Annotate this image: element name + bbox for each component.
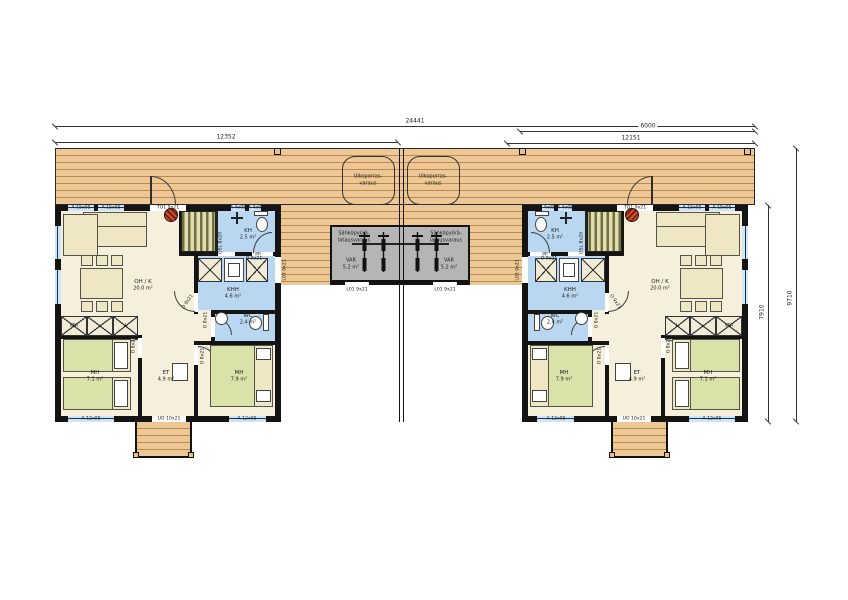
deck-post [744,148,751,155]
bed-blanket [63,339,113,372]
side-door-gap [522,257,528,283]
door-code: O 8x21 [595,312,600,329]
window [55,269,61,305]
entry-porch [611,422,668,458]
window-code: A 12x05 [81,417,100,422]
room-name: KHH [564,287,576,293]
apartment-left: A 15x05 A 15x05 TO1 9x21 A 4x05 A 4x05 K… [55,205,281,422]
window-code: A 12x05 [237,417,256,422]
bicycle-icon [411,230,424,274]
room-area: 4.9 m² [158,377,174,383]
bed-blanket [690,339,740,372]
window-code: A 4x05 [248,206,264,211]
dim-right-section: 12151 [619,135,642,142]
porch-post [188,452,194,458]
appliance-code: PK [204,253,210,258]
room-area: 2.5 m² [240,235,256,241]
storage-label: VAR [444,258,454,264]
window-code: A 4x05 [230,206,246,211]
appliance [563,263,575,277]
shower-icon [560,217,572,219]
room-area: 2.4 m² [240,320,256,326]
closet-code: L [676,324,679,329]
bicycle-icon [430,230,443,274]
room-name: ET [163,370,170,376]
room-name: KH [551,228,559,234]
room-area: 2.4 m² [547,320,563,326]
appliance-code: PP [542,253,548,258]
window [742,269,748,305]
window-code: A 15x05 [101,206,120,211]
dim-line-right-deck [520,131,755,132]
porch-post [664,452,670,458]
window-code: A 15x05 [712,206,731,211]
appliance [246,258,268,282]
room-area: 7.1 m² [700,377,716,383]
bed-pillow [532,390,547,402]
floor-plan-canvas: 24441 12352 6000 12151 7910 9710 Ulkopor… [0,0,848,600]
bed-pillow [256,348,271,360]
window-code: A 15x05 [682,206,701,211]
dining-chair [710,255,722,266]
room-area: 2.5 m² [547,235,563,241]
wall-segment [275,205,281,422]
sofa-chaise [63,214,98,256]
room-name: OH / K [134,279,151,285]
toilet-icon [535,217,547,232]
apartment-right: A 15x05 A 15x05 TO1 9x21 A 4x05 A 4x05 K… [522,205,748,422]
terrace-door-code: TO1 9x21 [624,206,646,211]
dining-chair [710,301,722,312]
room-area: 20.0 m² [650,286,670,292]
window-code: A 12x05 [702,417,721,422]
room-name: WC [550,313,559,319]
storage-door-gap [345,282,369,285]
dim-line-right [507,143,755,144]
dining-chair [96,301,108,312]
dining-chair [680,301,692,312]
dining-chair [81,301,93,312]
door-code: O 8x21 [201,348,206,365]
side-door-code: L03 9x21 [516,259,521,280]
shower-icon [231,217,243,219]
window-code: A 4x05 [557,206,573,211]
closet-code: L [125,324,128,329]
toilet-icon [254,211,268,216]
side-door-gap [275,257,281,283]
door-gap [605,345,609,365]
deck-post [274,148,281,155]
door-gap [588,317,592,337]
entry-porch [135,422,192,458]
room-name: MH [560,370,569,376]
sofa-chaise [705,214,740,256]
toilet-icon [263,314,269,331]
side-door-code: L03 9x21 [283,259,288,280]
stair-reservation-label: varaus [425,181,442,187]
dim-line-house-depth [768,205,769,422]
entry-door-code: UO 10x21 [623,417,646,422]
room-name: MH [235,370,244,376]
stair-block [587,211,622,252]
dim-total-depth: 9710 [787,288,794,307]
dim-left-section: 12352 [214,134,237,141]
door-gap [138,338,142,358]
dining-chair [695,255,707,266]
window [55,225,61,260]
closet-code: VPA [70,324,79,329]
room-name: KHH [227,287,239,293]
appliance [535,258,557,282]
dining-table [80,268,123,299]
toilet-icon [535,211,549,216]
porch-post [609,452,615,458]
room-area: 4.6 m² [225,294,241,300]
room-name: OH / K [651,279,668,285]
dim-total-width: 24441 [403,118,426,125]
sliding-door-code: OSL 8x20 [580,232,585,254]
deck-post [519,148,526,155]
bed-pillow [114,342,128,369]
dim-line-total-depth [796,148,797,422]
stair-block [181,211,216,252]
room-area: 7.1 m² [87,377,103,383]
stair-reservation-label: Ulkoporras- [419,174,448,180]
dim-house-depth: 7910 [759,302,766,321]
bed-pillow [675,380,689,407]
stair-reservation-label: varaus [360,181,377,187]
closet-code: VPA [725,324,734,329]
bed-pillow [675,342,689,369]
sliding-door-code: OSL 8x20 [219,232,224,254]
dim-right-deck: 6000 [638,123,657,130]
door-code: O 8x21 [132,337,137,354]
room-name: WC [243,313,252,319]
room-area: 20.0 m² [133,286,153,292]
closet [690,316,716,336]
sink-icon [575,312,588,325]
window-code: A 4x05 [539,206,555,211]
room-name: MH [91,370,100,376]
stair-reservation-label: Ulkoporras- [354,174,383,180]
door-code: O 8x21 [598,348,603,365]
dining-chair [81,255,93,266]
porch-post [133,452,139,458]
storage-label: VAR [346,258,356,264]
appliance [581,258,605,282]
bed-pillow [256,390,271,402]
dining-chair [111,301,123,312]
dining-chair [111,255,123,266]
room-name: KH [244,228,252,234]
window-code: A 12x05 [546,417,565,422]
appliance [228,263,240,277]
storage-door-gap [433,282,457,285]
hall-cabinet [172,363,188,381]
toilet-icon [256,217,268,232]
room-area: 7.9 m² [231,377,247,383]
appliance-code: PP [255,253,261,258]
storage-door-code: L01 9x21 [434,288,455,293]
appliance-code: PK [593,253,599,258]
window-code: A 15x05 [71,206,90,211]
closet [87,316,113,336]
dining-chair [695,301,707,312]
entry-door-code: UO 10x21 [158,417,181,422]
dim-line-left [55,142,398,143]
bicycle-icon [377,230,390,274]
storage-door-code: L01 9x21 [346,288,367,293]
party-wall-divider [399,148,404,422]
dining-chair [680,255,692,266]
sink-icon [215,312,228,325]
door-code: O 8x21 [667,337,672,354]
dining-table [680,268,723,299]
window [742,225,748,260]
storage-area: 5.2 m² [343,265,359,271]
storage-area: 5.2 m² [441,265,457,271]
bed-pillow [532,348,547,360]
room-area: 4.6 m² [562,294,578,300]
bed-pillow [114,380,128,407]
terrace-door-code: TO1 9x21 [157,206,179,211]
room-area: 7.9 m² [556,377,572,383]
toilet-icon [534,314,540,331]
door-code: O 8x21 [204,312,209,329]
dining-chair [96,255,108,266]
appliance [198,258,222,282]
bicycle-icon [358,230,371,274]
room-area: 4.9 m² [629,377,645,383]
room-name: ET [634,370,641,376]
room-name: MH [704,370,713,376]
